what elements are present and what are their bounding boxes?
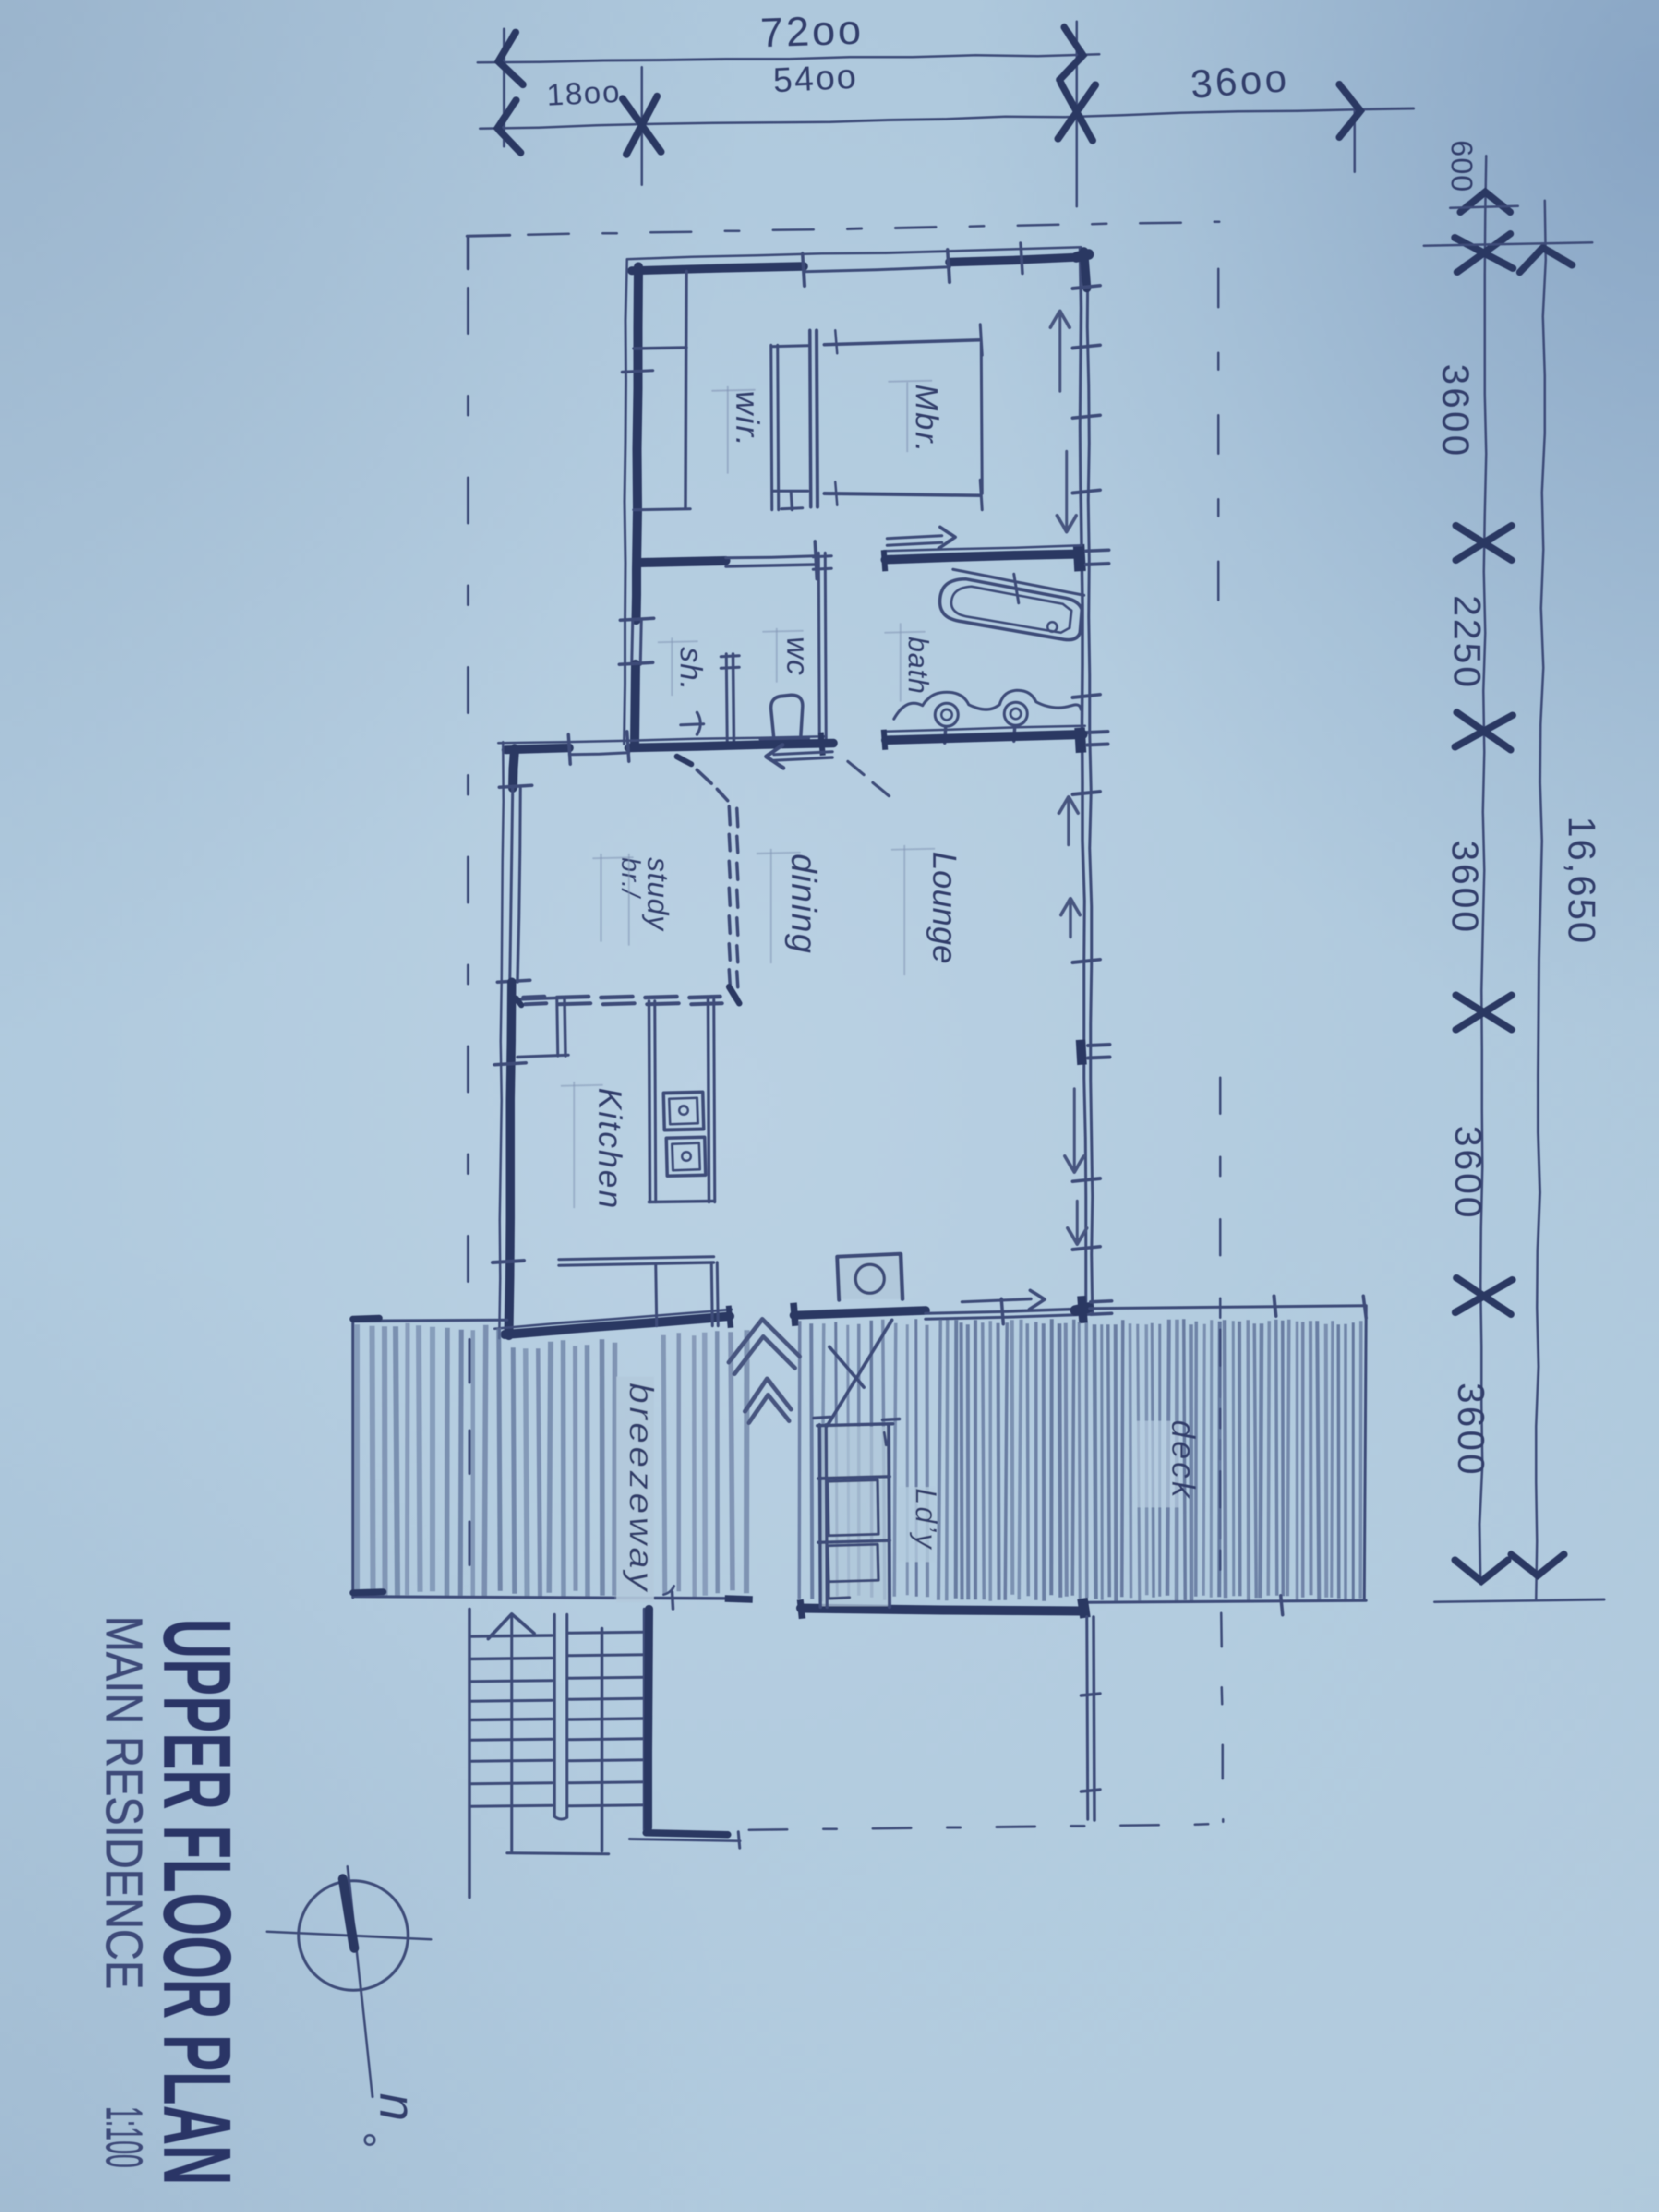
svg-text:54oo: 54oo (772, 57, 859, 100)
svg-text:18oo: 18oo (546, 74, 622, 112)
svg-text:MAIN RESIDENCE: MAIN RESIDENCE (96, 1616, 154, 1989)
svg-text:Kitchen: Kitchen (592, 1088, 628, 1210)
svg-text:3600: 3600 (1444, 840, 1487, 935)
svg-text:1:100: 1:100 (96, 2106, 154, 2168)
svg-text:2250: 2250 (1446, 595, 1489, 690)
svg-text:n: n (369, 2093, 425, 2122)
svg-text:Ld’y: Ld’y (909, 1488, 942, 1551)
svg-text:16,650: 16,650 (1561, 816, 1603, 945)
svg-text:wir.: wir. (729, 391, 766, 448)
svg-text:3600: 3600 (1450, 1382, 1492, 1478)
svg-text:600: 600 (1445, 140, 1478, 192)
svg-text:deck: deck (1165, 1420, 1202, 1501)
svg-text:36oo: 36oo (1189, 56, 1291, 107)
svg-text:bath: bath (902, 637, 934, 695)
svg-text:sh.: sh. (674, 647, 709, 691)
svg-text:UPPER FLOOR PLAN: UPPER FLOOR PLAN (144, 1619, 251, 2185)
svg-text:Lounge: Lounge (926, 852, 963, 964)
svg-text:3600: 3600 (1447, 1126, 1490, 1221)
svg-text:study: study (642, 857, 674, 932)
svg-text:br./: br./ (616, 857, 645, 899)
svg-text:dining: dining (784, 854, 823, 954)
svg-text:breezeway: breezeway (623, 1382, 660, 1594)
svg-text:3600: 3600 (1435, 364, 1477, 459)
svg-text:wc: wc (781, 637, 815, 676)
svg-text:72oo: 72oo (759, 7, 865, 56)
svg-text:Mbr.: Mbr. (909, 384, 945, 454)
